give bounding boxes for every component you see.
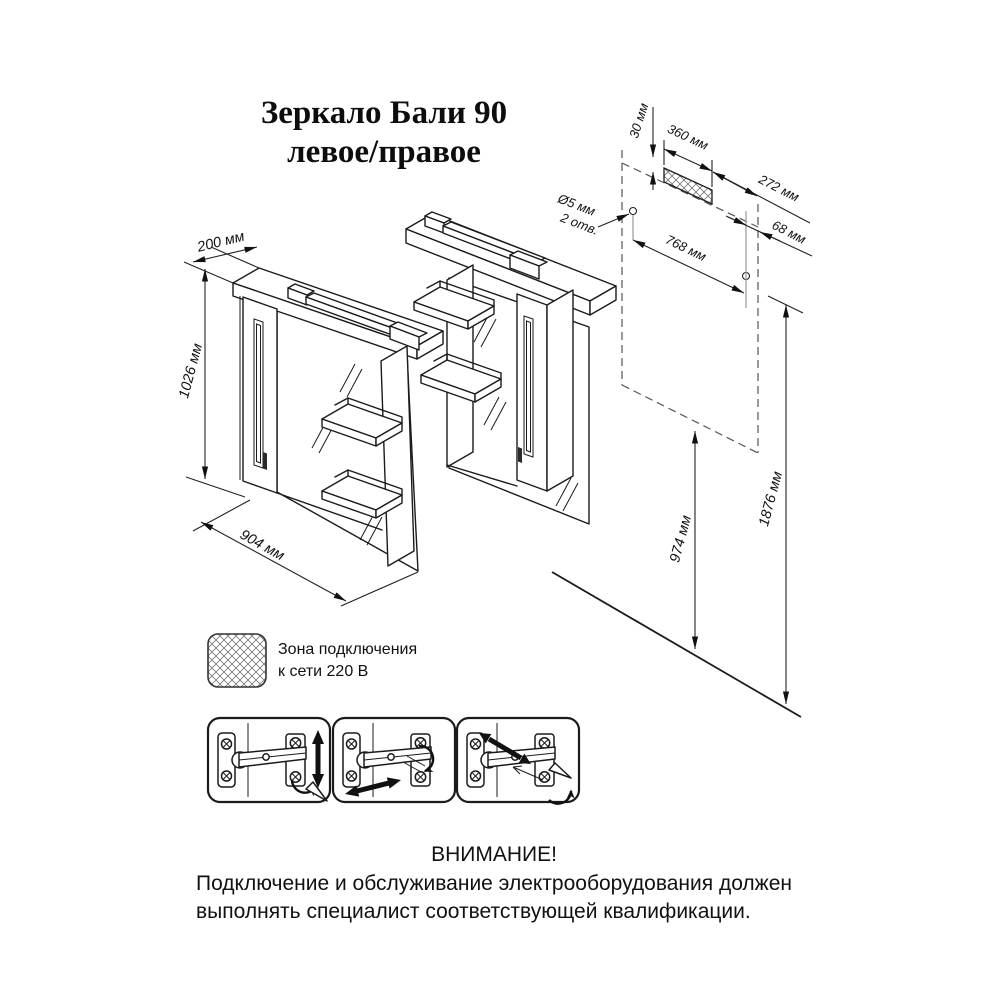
door-handle	[518, 447, 522, 463]
page-title-line2: левое/правое	[287, 134, 481, 170]
door-handle	[263, 452, 267, 470]
door	[240, 296, 277, 493]
warning-block: ВНИМАНИЕ! Подключение и обслуживание эле…	[196, 843, 792, 923]
dim-hole-spacing: 768 мм	[663, 232, 708, 264]
warning-title: ВНИМАНИЕ!	[431, 843, 557, 866]
dim-zone-offset: 30 мм	[626, 101, 651, 140]
hole-axis-lines	[633, 211, 746, 308]
legend-hatch-swatch	[208, 634, 266, 687]
warning-line1: Подключение и обслуживание электрооборуд…	[196, 872, 792, 895]
side-face-right	[547, 290, 573, 491]
dim-offset-right: 272 мм	[756, 171, 802, 204]
page-title-line1: Зеркало Бали 90	[261, 95, 507, 131]
legend-text-line1: Зона подключения	[278, 641, 417, 658]
instruction-sheet: Зеркало Бали 90 левое/правое	[0, 0, 1000, 1000]
mount-hole-left	[630, 208, 637, 215]
technical-drawing: Зеркало Бали 90 левое/правое	[0, 0, 1000, 1000]
dim-zone-width: 360 мм	[665, 121, 711, 153]
power-connection-strip	[664, 168, 712, 204]
hinge-panel-vertical-adjust	[208, 718, 330, 802]
dim-bottom-height: 974 мм	[667, 514, 695, 565]
legend: Зона подключения к сети 220 В	[208, 634, 417, 687]
dim-height: 1026 мм	[176, 342, 206, 400]
wall-zone-outline	[622, 150, 758, 453]
wall-mount-zone	[622, 150, 758, 453]
warning-line2: выполнять специалист соответствующей ква…	[196, 900, 751, 923]
legend-text-line2: к сети 220 В	[278, 663, 368, 680]
floor-line	[552, 572, 801, 717]
hinge-panel-depth-adjust	[457, 718, 579, 804]
dim-offset-edge: 68 мм	[770, 217, 809, 247]
cabinet-right-version	[406, 212, 616, 524]
door	[517, 294, 547, 491]
dim-total-height: 1876 мм	[756, 470, 786, 528]
hinge-panel-horizontal-adjust	[333, 718, 455, 802]
cabinet-left-version	[233, 268, 443, 571]
